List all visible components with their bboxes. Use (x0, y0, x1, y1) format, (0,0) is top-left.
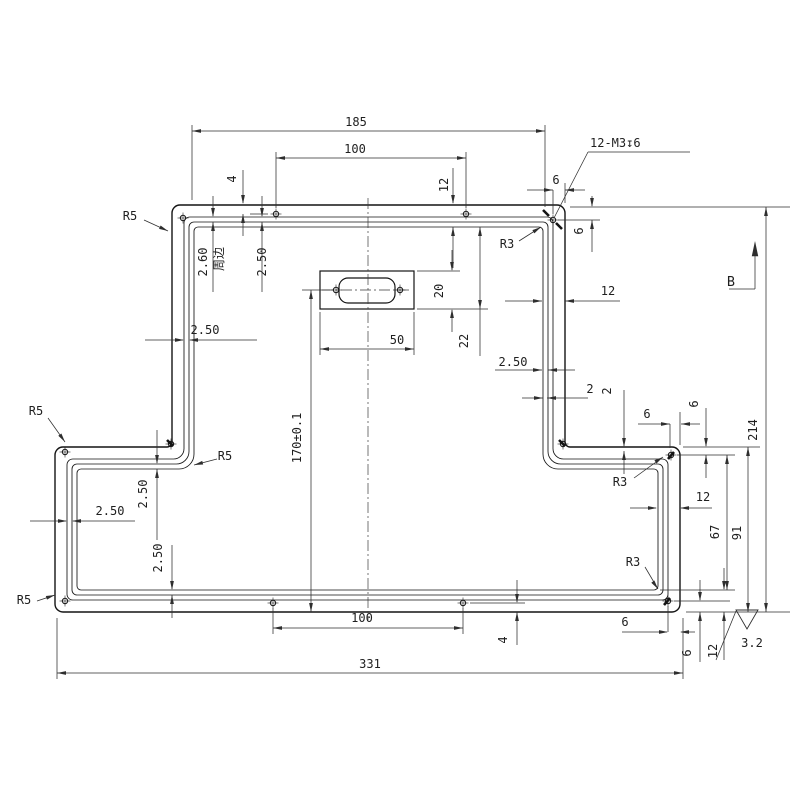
label-roughness-value: 3.2 (741, 636, 763, 650)
label-dim-6-br-h: 6 (621, 615, 628, 629)
label-dim-185: 185 (345, 115, 367, 129)
surface-roughness-symbol (736, 610, 758, 629)
label-r3-bottom-right: R3 (626, 555, 640, 569)
label-dim-4-top: 4 (225, 175, 239, 182)
label-dim-67: 67 (708, 525, 722, 539)
technical-drawing-canvas: 18510012-M3↧641266R5R32.60周边2.5020502212… (0, 0, 800, 800)
label-r3-right-step: R3 (613, 475, 627, 489)
label-r3-top-right: R3 (500, 237, 514, 251)
label-r5-top-left: R5 (123, 209, 137, 223)
label-dim-6-tr-v: 6 (572, 227, 586, 234)
dimension-labels: 18510012-M3↧641266R5R32.60周边2.5020502212… (17, 115, 763, 671)
label-dim-22: 22 (457, 334, 471, 348)
label-dim-6-step-v: 6 (687, 400, 701, 407)
label-dim-12-right: 12 (601, 284, 615, 298)
label-dim-12-flange-right: 12 (696, 490, 710, 504)
label-dim-6-br-v: 6 (680, 649, 694, 656)
label-dim-6-step-h: 6 (643, 407, 650, 421)
label-r5-bottom-left: R5 (17, 593, 31, 607)
label-dim-6-tr-h: 6 (552, 173, 559, 187)
label-dim-20: 20 (432, 284, 446, 298)
label-dim-250-top-left: 2.50 (255, 248, 269, 277)
label-dim-250-bottom-left-h: 2.50 (96, 504, 125, 518)
label-dim-100-bottom: 100 (351, 611, 373, 625)
inner-contours (67, 217, 668, 600)
label-dim-214: 214 (746, 419, 760, 441)
label-dim-250-left-wall: 2.50 (191, 323, 220, 337)
label-dim-331: 331 (359, 657, 381, 671)
label-dim-2-h: 2 (586, 382, 593, 396)
label-dim-250-bottom-left-v: 2.50 (151, 544, 165, 573)
dimension-arrows (46, 129, 768, 675)
label-r5-left-step-outer: R5 (29, 404, 43, 418)
dimension-lines (30, 125, 790, 679)
label-dim-50: 50 (390, 333, 404, 347)
page: { "drawing": { "colors": { "background":… (0, 0, 800, 800)
label-r5-left-step-inner: R5 (218, 449, 232, 463)
centerlines (322, 198, 412, 620)
label-dim-91: 91 (730, 526, 744, 540)
drawing-sheet: 18510012-M3↧641266R5R32.60周边2.5020502212… (0, 0, 800, 800)
label-dim-2-v: 2 (600, 387, 614, 394)
label-thread-note: 12-M3↧6 (590, 136, 641, 150)
label-dim-12-top: 12 (437, 178, 451, 192)
label-datum-b: B (727, 274, 735, 290)
label-dim-12-br-v: 12 (706, 644, 720, 658)
label-dim-250-right: 2.50 (499, 355, 528, 369)
label-dim-100-top: 100 (344, 142, 366, 156)
label-dim-260-wall: 2.60 (196, 248, 210, 277)
label-dim-170: 170±0.1 (290, 413, 304, 464)
label-note-perimeter: 周边 (212, 247, 226, 271)
label-dim-250-left-step: 2.50 (136, 480, 150, 509)
label-dim-4-bottom: 4 (496, 636, 510, 643)
part-outline (55, 205, 680, 612)
